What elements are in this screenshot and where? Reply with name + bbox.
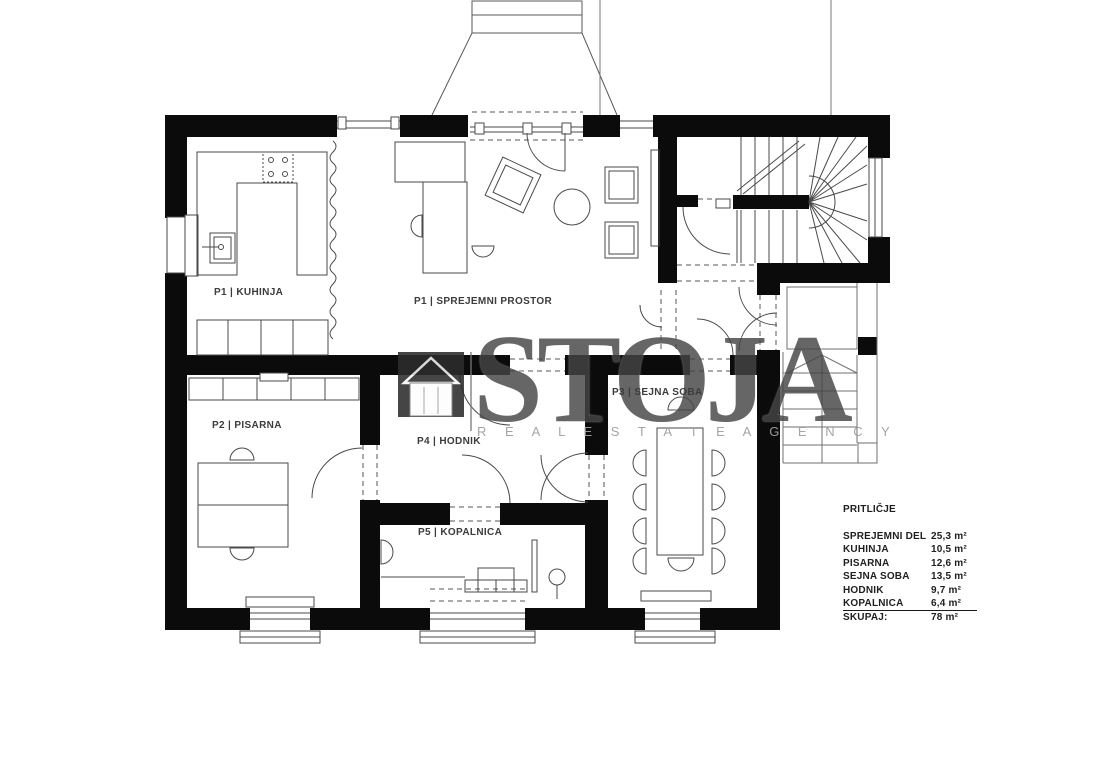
conference-chair [668,397,694,410]
legend-room-area: 9,7 m² [931,584,977,597]
kitchen-fixtures [197,141,336,355]
legend-row: SPREJEMNI DEL 25,3 m² [843,530,977,543]
office-furniture [189,373,359,560]
lounge-chair-tilted [485,157,541,213]
legend-row: SEJNA SOBA 13,5 m² [843,570,977,583]
armchair [605,167,638,203]
conference-chair [668,558,694,571]
legend-total-row: SKUPAJ: 78 m² [843,611,977,624]
legend-total-area: 78 m² [931,611,977,624]
legend-room-name: KUHINJA [843,543,931,556]
legend-title: PRITLIČJE [843,504,977,515]
bath-partition [532,540,537,592]
armchair [605,222,638,258]
curtain-divider [330,141,336,339]
door-vestibule-exterior [739,287,777,351]
stove [263,152,293,182]
living-room-furniture [395,142,659,273]
window-staircase-right [869,158,882,237]
legend-room-name: KOPALNICA [843,597,931,610]
door-vestibule-meeting [697,319,733,355]
door-entrance [527,133,565,171]
bathroom-fixtures [381,540,565,599]
legend-room-area: 25,3 m² [931,530,977,543]
legend-room-name: SEJNA SOBA [843,570,931,583]
office-shelf [189,373,359,400]
conference-chair [633,518,646,544]
conference-chair [712,548,725,574]
room-label-kuhinja: P1 | KUHINJA [214,287,283,298]
meeting-room-furniture [633,397,725,574]
window-kitchen-top [337,117,400,129]
room-label-sprejemni-prostor: P1 | SPREJEMNI PROSTOR [414,296,552,307]
toilet [549,569,565,599]
room-label-sejna-soba: P3 | SEJNA SOBA [612,387,702,398]
site-lines [600,0,831,115]
office-chair [230,548,254,560]
legend-room-area: 12,6 m² [931,557,977,570]
room-label-hodnik: P4 | HODNIK [417,436,481,447]
room-label-kopalnica: P5 | KOPALNICA [418,527,502,538]
legend-room-area: 13,5 m² [931,570,977,583]
sideboard [651,150,659,246]
area-legend: PRITLIČJE SPREJEMNI DEL 25,3 m² KUHINJA … [843,504,977,625]
entrance-porch [432,1,617,115]
kitchen-cabinets [197,320,328,355]
washer-unit [465,568,527,592]
legend-total-label: SKUPAJ: [843,611,931,624]
conference-chair [633,450,646,476]
door-vestibule-living [640,305,662,327]
legend-room-name: HODNIK [843,584,931,597]
legend-room-area: 6,4 m² [931,597,977,610]
conference-chair [712,518,725,544]
legend-room-area: 10,5 m² [931,543,977,556]
door-bathroom [462,455,510,503]
legend-row: HODNIK 9,7 m² [843,584,977,597]
door-office [312,448,362,498]
window-entrance-glazing [470,123,583,134]
legend-row: PISARNA 12,6 m² [843,557,977,570]
door-hall-meeting [541,453,588,502]
conference-chair [712,484,725,510]
kitchen-sink [202,233,235,263]
legend-room-name: SPREJEMNI DEL [843,530,931,543]
window-kitchen-left [167,215,198,276]
window-bathroom-bottom [420,613,535,643]
legend-row: KOPALNICA 6,4 m² [843,597,977,611]
door-staircase [683,199,730,254]
reception-desk [395,142,467,273]
kitchen-counter [197,152,327,275]
exterior-stairs [783,283,877,463]
room-label-pisarna: P2 | PISARNA [212,420,282,431]
office-chair [230,448,254,460]
conference-chair [712,450,725,476]
conference-chair [633,548,646,574]
doors [312,133,777,503]
round-table [554,189,590,225]
legend-room-name: PISARNA [843,557,931,570]
floor-plan-page: STOJA R E A L E S T A T E A G E N C Y P1… [0,0,1095,768]
desk-chair [472,246,494,257]
conference-table [657,428,703,555]
floor-plan-drawing [0,0,1095,768]
door-living-hall [460,375,510,425]
window-top-right [620,121,653,128]
conference-chair [633,484,646,510]
washbasin [381,540,393,564]
window-office-bottom [240,597,320,643]
legend-row: KUHINJA 10,5 m² [843,543,977,556]
office-desks [198,463,288,547]
desk-chair [411,215,422,237]
